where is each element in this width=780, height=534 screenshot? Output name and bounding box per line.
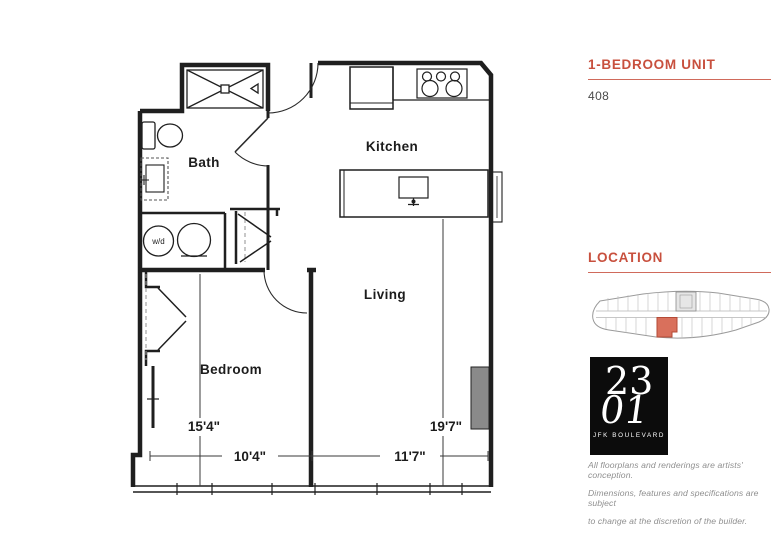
refrigerator [350,67,393,109]
disclaimer: All floorplans and renderings are artist… [588,460,778,534]
elevator-core [676,292,696,311]
interior-walls [138,63,316,487]
structural-column [471,367,489,429]
dim-living-depth: 19'7" [430,419,462,434]
floorplan: w/d Bath Kitchen Living Bedroom [0,0,560,517]
location-heading: LOCATION [588,250,773,265]
bath-door-leaf [235,118,268,152]
washer-dryer-label: w/d [151,237,164,246]
room-label-bath: Bath [188,155,220,170]
room-label-kitchen: Kitchen [366,139,418,154]
island-sink [399,177,428,206]
unit-heading-underline [588,79,771,80]
room-label-living: Living [364,287,406,302]
logo-number-bottom: 01 [588,396,670,426]
unit-type-heading: 1-BEDROOM UNIT [588,57,773,72]
dim-bedroom-width: 10'4" [234,449,266,464]
unit-section: 1-BEDROOM UNIT 408 [588,57,773,103]
disclaimer-line-1: All floorplans and renderings are artist… [588,460,778,481]
stove [417,69,467,98]
dashed-lines [146,212,245,360]
location-heading-underline [588,272,771,273]
dimension-lines [150,219,488,486]
info-panel: 1-BEDROOM UNIT 408 LOCATION 23 01 JFK BO… [588,0,776,517]
disclaimer-line-2: Dimensions, features and specifications … [588,488,778,509]
location-map [588,284,775,350]
right-wall-window [492,172,502,222]
location-section: LOCATION [588,250,773,350]
water-heater-tank [178,224,211,257]
logo-street-name: JFK BOULEVARD [590,432,668,439]
toilet [142,122,183,149]
floorplan-svg: w/d Bath Kitchen Living Bedroom [0,0,560,517]
bedroom-door-arc [264,270,307,313]
dim-bedroom-depth: 15'4" [188,419,220,434]
bath-sink-vanity [141,158,168,200]
room-label-bedroom: Bedroom [200,362,262,377]
unit-number: 408 [588,89,773,103]
brand-logo: 23 01 JFK BOULEVARD [590,357,668,455]
bath-door-arc [235,152,268,166]
dim-living-width: 11'7" [394,449,425,464]
shower [187,70,263,108]
closet-bifold-doors [158,214,271,350]
disclaimer-line-3: to change at the discretion of the build… [588,516,778,526]
